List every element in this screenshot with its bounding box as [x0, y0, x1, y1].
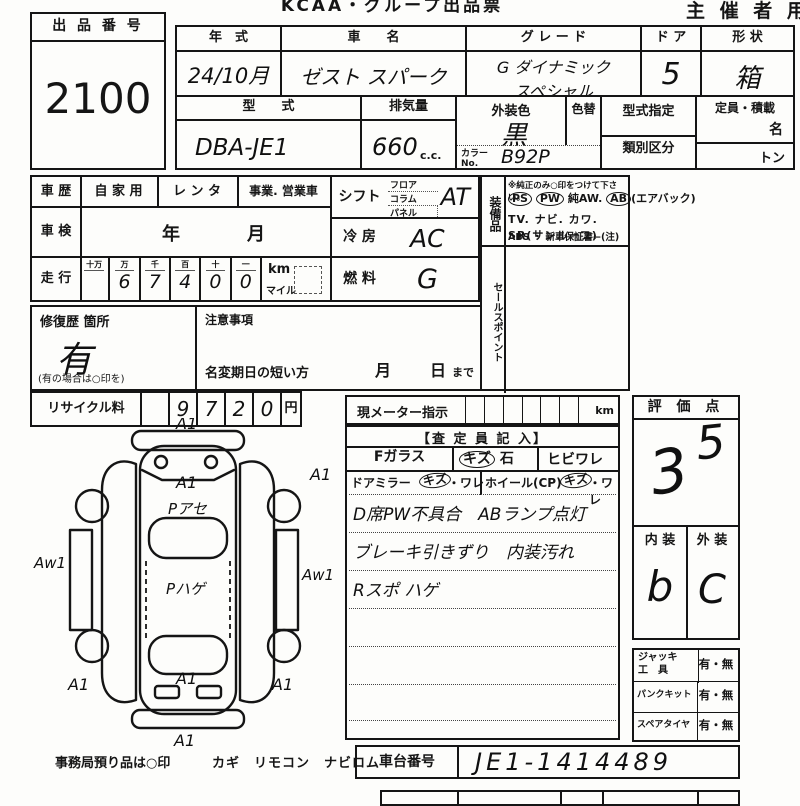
- mileage-col-10k: 万 6: [110, 258, 140, 300]
- capacity-divider: [697, 142, 793, 144]
- inspector-hline2: [347, 470, 618, 472]
- windshield-outline: [149, 518, 227, 558]
- meter-cell: [522, 397, 541, 423]
- grade-value-line1: G ダイナミック: [467, 54, 640, 78]
- caution-box: 注意事項 名変期日の短い方 月 日 まで: [195, 305, 482, 391]
- equipment-label: 装備品: [482, 177, 506, 248]
- shift-opt-floor: フロア: [388, 178, 438, 192]
- color-no-label: カラーNo.: [461, 150, 495, 170]
- fglass-kizu: キズ: [459, 451, 495, 468]
- spare-tire-row: スペアタイヤ 有・無: [634, 712, 738, 741]
- meter-label: 現メーター指示: [357, 402, 448, 421]
- notes-dotline: [349, 720, 616, 721]
- car-damage-diagram: A1 A1 Pアセ Pハゲ A1 Aw1 Aw1 A1 A1 A1 A1: [28, 418, 340, 752]
- car-name-label: 車 名: [282, 27, 465, 52]
- chassis-number-value: JE1-1414489: [475, 747, 672, 778]
- damage-front-top: A1: [175, 418, 197, 433]
- lot-number-value: 2100: [32, 74, 164, 123]
- door-cell: ド ア 5: [640, 25, 702, 97]
- caution-label: 注意事項: [205, 311, 480, 328]
- office-deposit-note: 事務局預り品は○印: [55, 752, 170, 771]
- puncture-kit-row: パンクキット 有・無: [634, 681, 738, 713]
- repair-history-note: (有の場合は○印を): [38, 370, 125, 385]
- meter-digit-cells: [465, 397, 597, 423]
- capacity-load-label: トン: [759, 147, 785, 166]
- capacity-persons-label: 名: [769, 119, 783, 139]
- exterior-value: C: [686, 567, 738, 613]
- history-private: 自 家 用: [80, 177, 159, 206]
- score-value-sub: 5: [693, 414, 728, 471]
- caution-month: 月: [375, 357, 391, 381]
- mileage-label: 走 行: [32, 258, 82, 300]
- interior-label: 内 装: [634, 529, 686, 548]
- damage-rear-center: A1: [175, 669, 197, 688]
- mileage-col-label: 万: [115, 259, 135, 271]
- history-row: 車 歴 自 家 用 レ ン タ 事業. 営業車: [30, 175, 332, 208]
- equipment-ps: PS: [508, 192, 532, 206]
- damage-hood-paint: Pアセ: [168, 500, 208, 518]
- damage-roof: Pハゲ: [166, 580, 207, 598]
- type-class-divider: [602, 135, 695, 137]
- meter-cell: [559, 397, 578, 423]
- mileage-col-label: 十: [206, 259, 226, 271]
- mirror-label: ドアミラー: [351, 474, 411, 491]
- displacement-value: 660: [372, 133, 418, 161]
- headlight-left: [155, 456, 167, 468]
- partial-divider: [697, 792, 699, 804]
- fuel-row: 燃 料 G: [330, 256, 480, 302]
- mileage-digits: 十万 万 6 千 7 百 4 十 0 一 0: [80, 258, 262, 300]
- partial-divider: [560, 792, 562, 804]
- grade-label: グ レ ー ド: [467, 27, 640, 52]
- mileage-col-label: 百: [175, 259, 195, 271]
- taillight-right: [197, 686, 221, 698]
- left-side-panel: [102, 462, 136, 703]
- fglass-divider: [537, 446, 539, 470]
- damage-rear-bottom: A1: [173, 731, 195, 750]
- history-business: 事業. 営業車: [237, 177, 330, 206]
- meter-unit: km: [595, 404, 614, 417]
- wheel-rear-right: [268, 630, 300, 662]
- model-code-cell: 型 式 DBA-JE1: [175, 95, 362, 170]
- lot-number-label: 出 品 番 号: [32, 14, 164, 42]
- mileage-km-label: km: [268, 262, 290, 277]
- equipment-box: 装備品 ※純正のみ○印をつけて下さい。 PS PW 純AW. AB(エアバック)…: [480, 175, 630, 247]
- inspector-header: 【査 定 員 記 入】: [347, 428, 618, 447]
- shift-value: AT: [441, 183, 470, 211]
- damage-rear-right: A1: [271, 675, 293, 694]
- type-designation-cell: 型式指定 類別区分: [600, 95, 697, 170]
- shaken-label: 車 検: [32, 208, 82, 256]
- left-sill: [70, 530, 92, 630]
- fglass-label: Fガラス: [347, 446, 454, 470]
- lot-number-box: 出 品 番 号 2100: [30, 12, 166, 170]
- displacement-cell: 排気量 660 c.c.: [360, 95, 457, 170]
- model-code-label: 型 式: [177, 97, 360, 121]
- shaken-month: 月: [247, 220, 265, 246]
- office-deposit-items: カギ リモコン ナビロム: [212, 752, 380, 771]
- equipment-line1: PS PW 純AW. AB(エアバック): [508, 190, 696, 206]
- shift-label: シフト: [332, 177, 387, 217]
- score-box: 評 価 点 3 5 内 装 外 装 b C: [632, 395, 740, 640]
- notes-dotline: [349, 684, 616, 685]
- right-sill: [276, 530, 298, 630]
- mileage-digit: 7: [141, 271, 169, 293]
- mileage-digit: 4: [171, 271, 199, 293]
- caution-line: 名変期日の短い方: [205, 362, 309, 381]
- displacement-label: 排気量: [362, 97, 455, 121]
- meter-cell: [503, 397, 522, 423]
- sales-point-label: セールスポイント: [482, 247, 506, 393]
- year-cell: 年 式 24/10月: [175, 25, 282, 97]
- shift-row: シフト フロア コラム パネル AT: [330, 175, 480, 219]
- mileage-col-1: 一 0: [232, 258, 262, 300]
- displacement-unit: c.c.: [420, 149, 441, 162]
- jack-row: ジャッキ 工 具 有・無: [634, 650, 738, 682]
- sheet-title: KCAA・グループ出品票: [237, 0, 547, 16]
- equipment-aw: 純AW.: [568, 192, 602, 205]
- mileage-col-100k: 十万: [80, 258, 110, 300]
- mileage-col-10: 十 0: [201, 258, 231, 300]
- type-designation-label: 型式指定: [602, 100, 695, 119]
- mileage-col-label: 一: [236, 259, 256, 271]
- history-label: 車 歴: [32, 177, 82, 206]
- mileage-col-1k: 千 7: [141, 258, 171, 300]
- right-side-panel: [240, 462, 274, 703]
- sales-point-box: セールスポイント: [480, 245, 630, 391]
- inspector-note-3: Rスポ ハゲ: [353, 576, 438, 601]
- meter-box: 現メーター指示 km: [345, 395, 620, 425]
- notes-dotline: [349, 494, 616, 495]
- caution-suffix: まで: [452, 364, 474, 380]
- rear-bumper-outline: [132, 710, 244, 728]
- meter-cell: [578, 397, 597, 423]
- meter-cell: [465, 397, 484, 423]
- inspector-note-2: ブレーキ引きずり 内装汚れ: [353, 538, 574, 563]
- mileage-mile-label: マイル: [266, 282, 296, 297]
- mileage-row: 走 行 十万 万 6 千 7 百 4 十 0 一 0 km マイル: [30, 256, 332, 302]
- mileage-col-label: 十万: [84, 259, 104, 271]
- mirror-ware: ・ワレ: [448, 474, 484, 491]
- cooling-value: AC: [410, 224, 445, 253]
- chassis-number-box: 車台番号 JE1-1414489: [355, 745, 740, 779]
- notes-dotline: [349, 570, 616, 571]
- mileage-digit: 6: [110, 271, 138, 293]
- meter-cell: [484, 397, 503, 423]
- notes-dotline: [349, 608, 616, 609]
- puncture-kit-label: パンクキット: [634, 681, 698, 712]
- damage-side-right: Aw1: [301, 566, 334, 584]
- car-name-value: ゼスト スパーク: [282, 61, 465, 90]
- partial-divider: [602, 792, 604, 804]
- shift-opt-column: コラム: [388, 192, 438, 206]
- damage-front-right: A1: [309, 465, 331, 484]
- shape-value: 箱: [702, 58, 793, 95]
- door-value: 5: [642, 57, 700, 92]
- equipment-ab-suffix: (エアバック): [631, 192, 696, 205]
- exterior-label: 外 装: [686, 529, 738, 548]
- year-label: 年 式: [177, 27, 280, 52]
- capacity-cell: 定員・積載 名 トン: [695, 95, 795, 170]
- repair-history-label: 修復歴 箇所: [40, 311, 195, 330]
- wheel-ware: ・ワレ: [589, 474, 618, 508]
- mileage-digit: 0: [201, 271, 229, 293]
- door-label: ド ア: [642, 27, 700, 52]
- notes-dotline: [349, 646, 616, 647]
- shaken-year: 年: [162, 220, 180, 246]
- wheel-kizu: キズ: [559, 471, 592, 489]
- inspector-note-1: D席PW不具合 ABランプ点灯: [353, 500, 586, 525]
- damage-rear-left: A1: [67, 675, 89, 694]
- damage-side-left: Aw1: [33, 554, 66, 572]
- accessories-box: ジャッキ 工 具 有・無 パンクキット 有・無 スペアタイヤ 有・無: [632, 648, 740, 742]
- shaken-row: 車 検 年 月: [30, 206, 332, 258]
- damage-hood: A1: [175, 473, 197, 492]
- equipment-ab: AB: [606, 192, 631, 206]
- organizer-label: 主 催 者 用: [686, 0, 800, 23]
- history-rental: レ ン タ: [157, 177, 239, 206]
- color-no-value: B92P: [501, 146, 550, 168]
- fglass-options: キズ 石: [459, 448, 514, 468]
- year-value: 24/10月: [177, 60, 280, 90]
- capacity-label: 定員・積載: [697, 99, 793, 116]
- grade-cell: グ レ ー ド G ダイナミック スペシャル: [465, 25, 642, 97]
- spare-tire-value: 有・無: [694, 712, 738, 739]
- cooling-row: 冷 房 AC: [330, 217, 480, 258]
- shape-label: 形 状: [702, 27, 793, 52]
- inspector-box: 【査 定 員 記 入】 Fガラス キズ 石 ヒビワレ ドアミラー キズ ・ワレ …: [345, 425, 620, 740]
- exterior-color-cell: 外装色 色替 黒 カラーNo. B92P: [455, 95, 602, 170]
- mileage-unit-checkbox: [294, 266, 322, 294]
- notes-dotline: [349, 532, 616, 533]
- jack-label-line1: ジャッキ: [638, 652, 698, 665]
- jack-label: ジャッキ 工 具: [634, 650, 699, 683]
- equipment-pw: PW: [536, 192, 564, 206]
- mirror-kizu: キズ: [418, 471, 451, 489]
- fuel-value: G: [417, 264, 438, 295]
- mileage-col-label: 千: [145, 259, 165, 271]
- interior-value: b: [634, 562, 686, 611]
- jack-label-line2: 工 具: [638, 665, 698, 678]
- caution-day: 日: [430, 357, 446, 381]
- fglass-crack: ヒビワレ: [547, 449, 603, 469]
- fglass-stone: 石: [500, 451, 514, 467]
- meter-cell: [540, 397, 559, 423]
- class-division-label: 類別区分: [602, 137, 695, 156]
- wheel-label: ホイール(CP): [485, 474, 562, 491]
- fuel-label: 燃 料: [332, 258, 387, 300]
- cooling-label: 冷 房: [332, 219, 387, 256]
- score-value-main: 3: [644, 434, 694, 510]
- row2-divider: [480, 470, 482, 495]
- shape-cell: 形 状 箱: [700, 25, 795, 97]
- repair-history-box: 修復歴 箇所 有 (有の場合は○印を): [30, 305, 197, 391]
- mileage-digit: 0: [232, 271, 260, 293]
- recolor-label: 色替: [565, 100, 602, 117]
- model-code-value: DBA-JE1: [195, 135, 360, 161]
- shift-options: フロア コラム パネル: [388, 178, 438, 219]
- jack-value: 有・無: [694, 650, 738, 679]
- partial-divider: [457, 792, 459, 804]
- puncture-kit-value: 有・無: [694, 681, 738, 710]
- wheel-front-right: [268, 490, 300, 522]
- partial-bottom-row: [380, 790, 740, 806]
- mileage-col-100: 百 4: [171, 258, 201, 300]
- car-name-cell: 車 名 ゼスト スパーク: [280, 25, 467, 97]
- spare-tire-label: スペアタイヤ: [634, 712, 698, 741]
- headlight-right: [205, 456, 217, 468]
